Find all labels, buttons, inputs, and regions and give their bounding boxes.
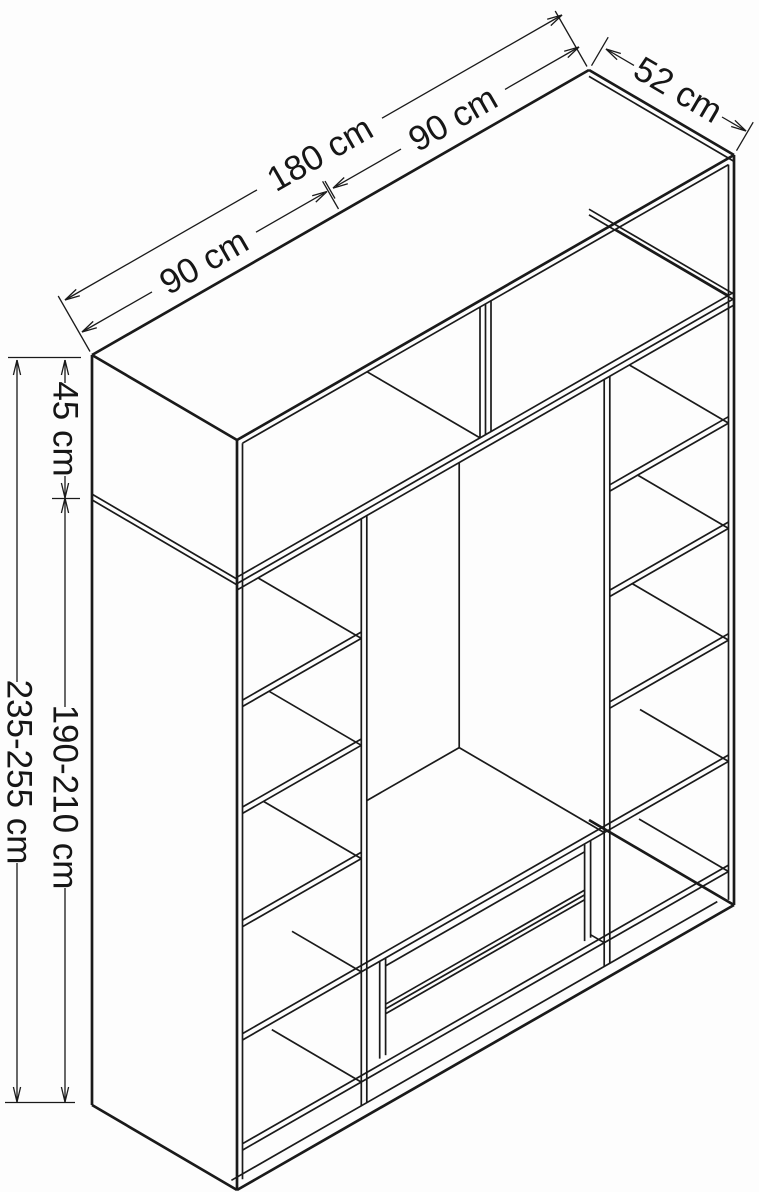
- svg-text:235-255 cm: 235-255 cm: [0, 680, 39, 865]
- svg-text:190-210 cm: 190-210 cm: [46, 705, 85, 890]
- svg-text:45 cm: 45 cm: [46, 381, 85, 476]
